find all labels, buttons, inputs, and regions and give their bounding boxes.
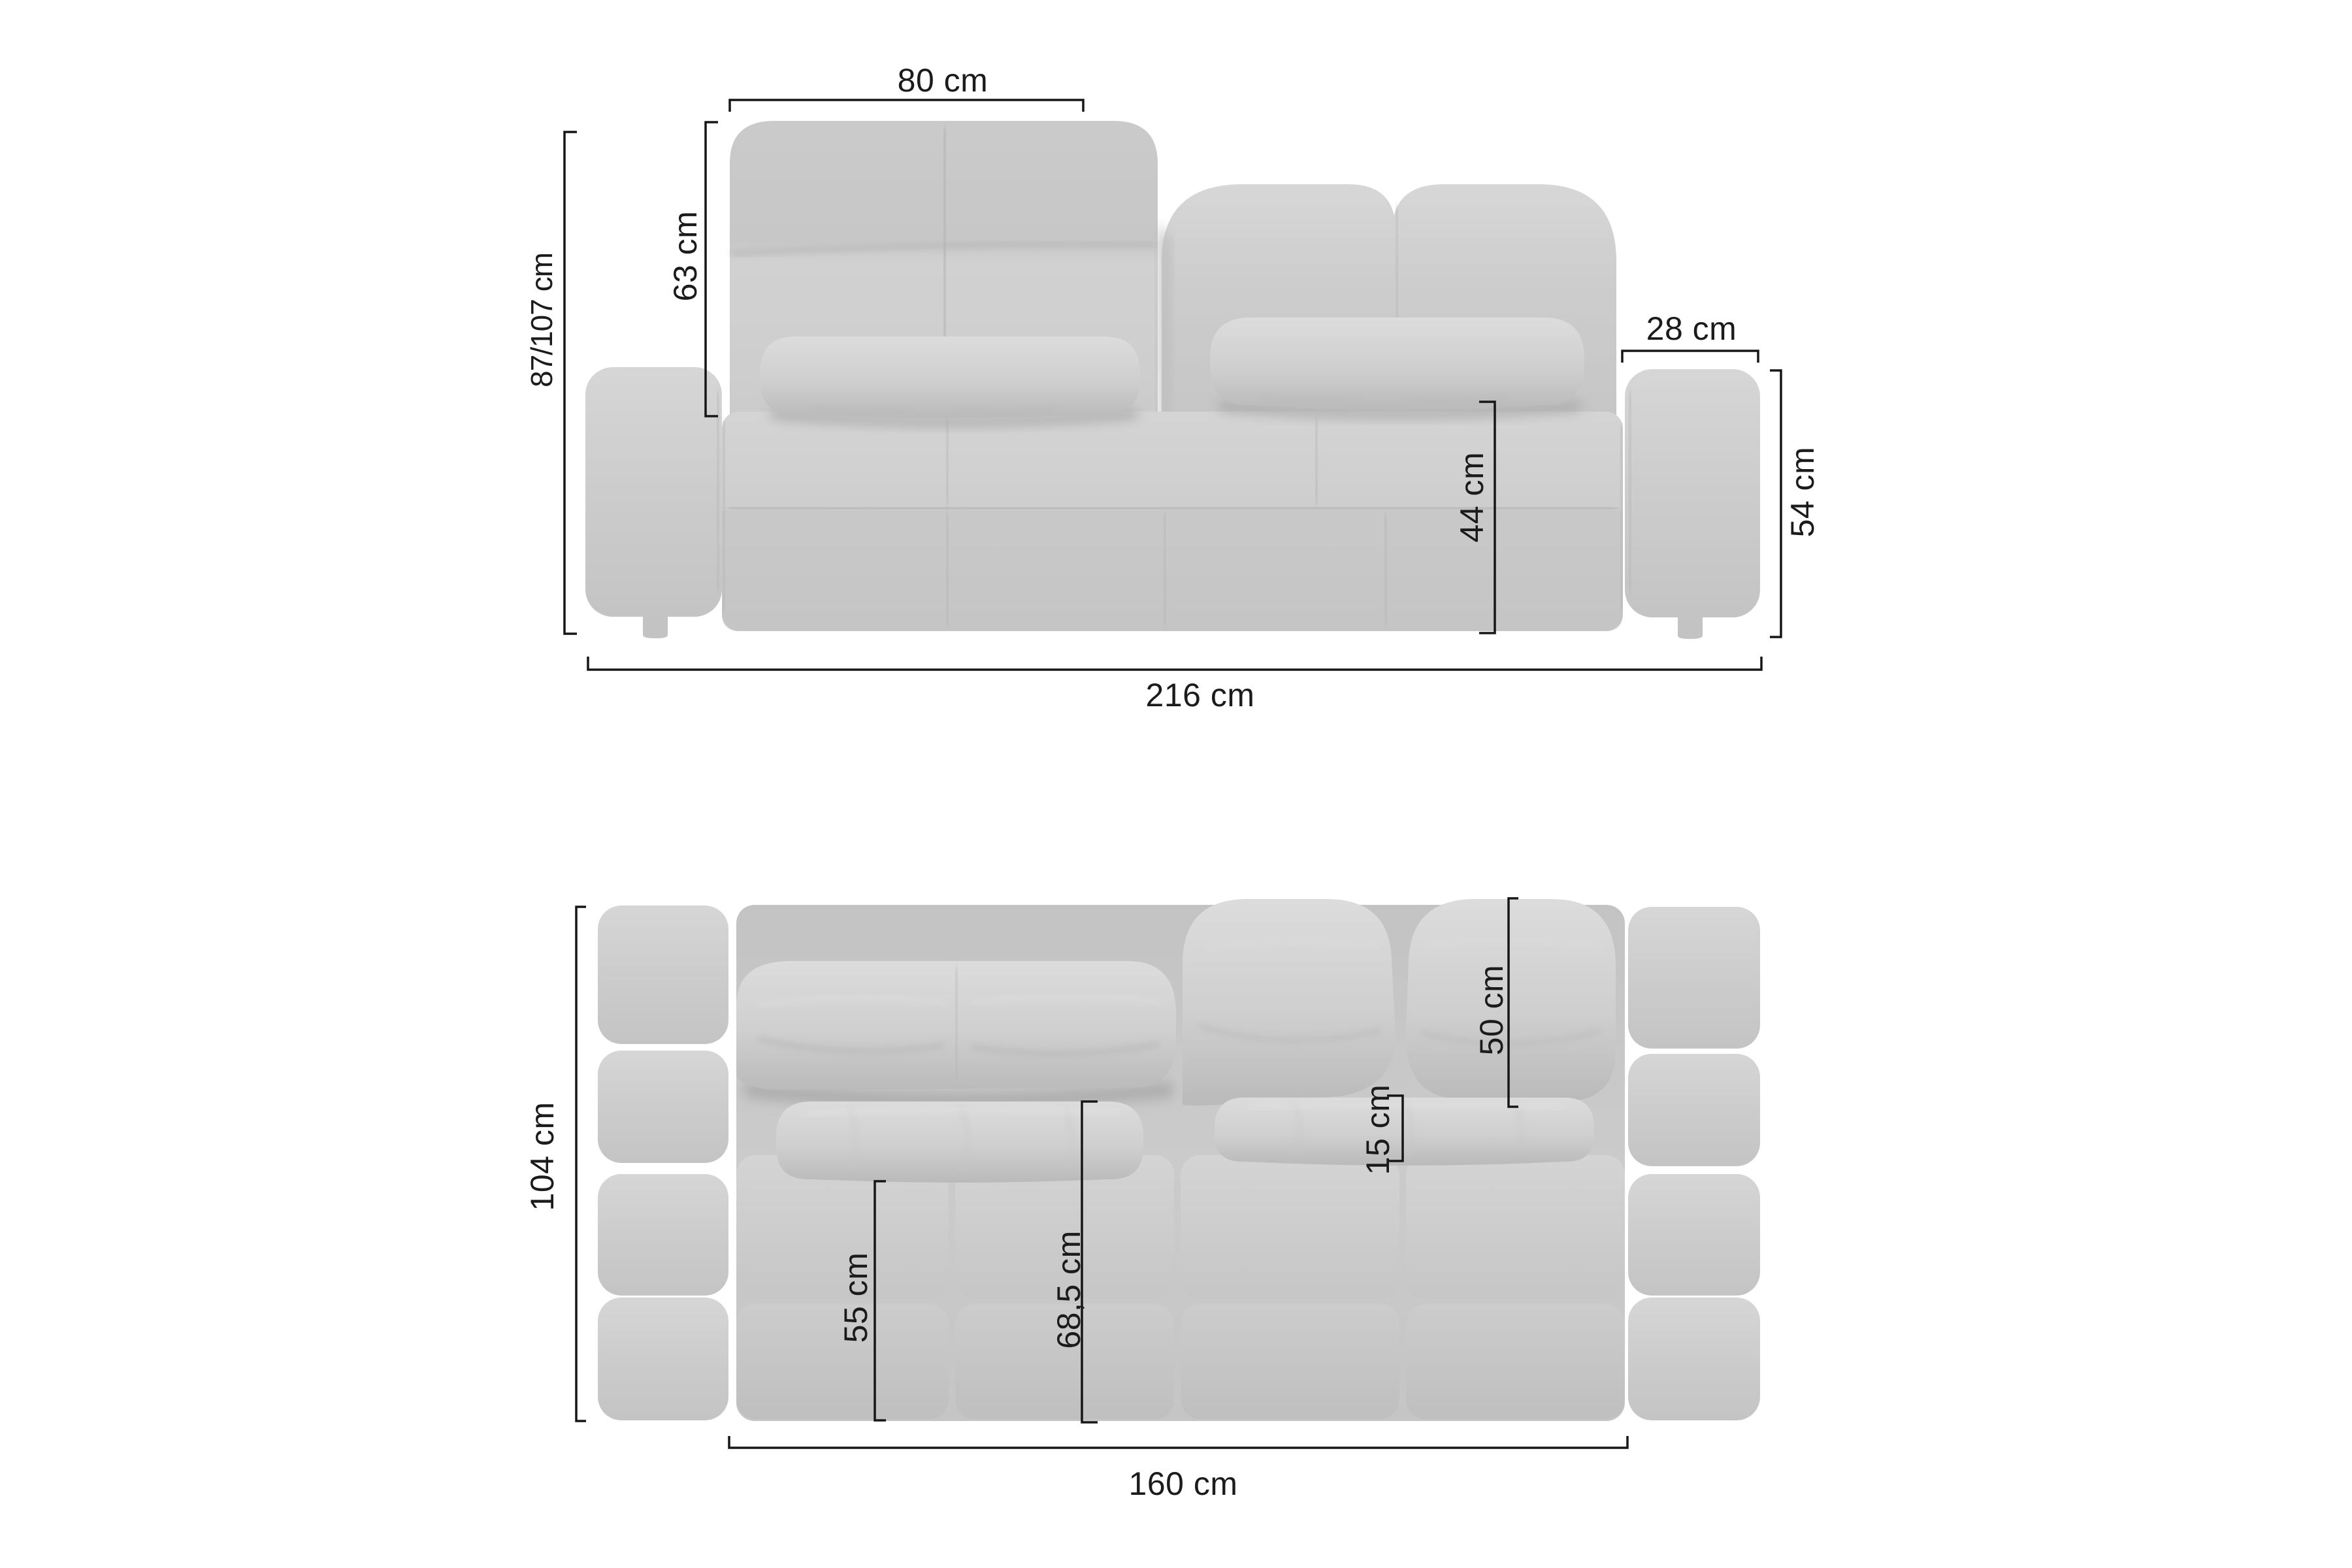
svg-text:80 cm: 80 cm [898, 62, 988, 99]
svg-text:87/107 cm: 87/107 cm [525, 253, 559, 387]
svg-text:63 cm: 63 cm [667, 211, 704, 302]
svg-text:160 cm: 160 cm [1129, 1465, 1238, 1502]
svg-text:44 cm: 44 cm [1454, 452, 1490, 543]
svg-text:104 cm: 104 cm [524, 1102, 561, 1211]
svg-text:55 cm: 55 cm [838, 1252, 874, 1343]
svg-text:15 cm: 15 cm [1360, 1085, 1396, 1175]
svg-text:50 cm: 50 cm [1473, 965, 1510, 1056]
svg-text:216 cm: 216 cm [1146, 677, 1255, 713]
svg-text:28 cm: 28 cm [1646, 310, 1737, 347]
svg-text:68,5 cm: 68,5 cm [1051, 1230, 1087, 1348]
svg-text:54 cm: 54 cm [1784, 447, 1821, 538]
